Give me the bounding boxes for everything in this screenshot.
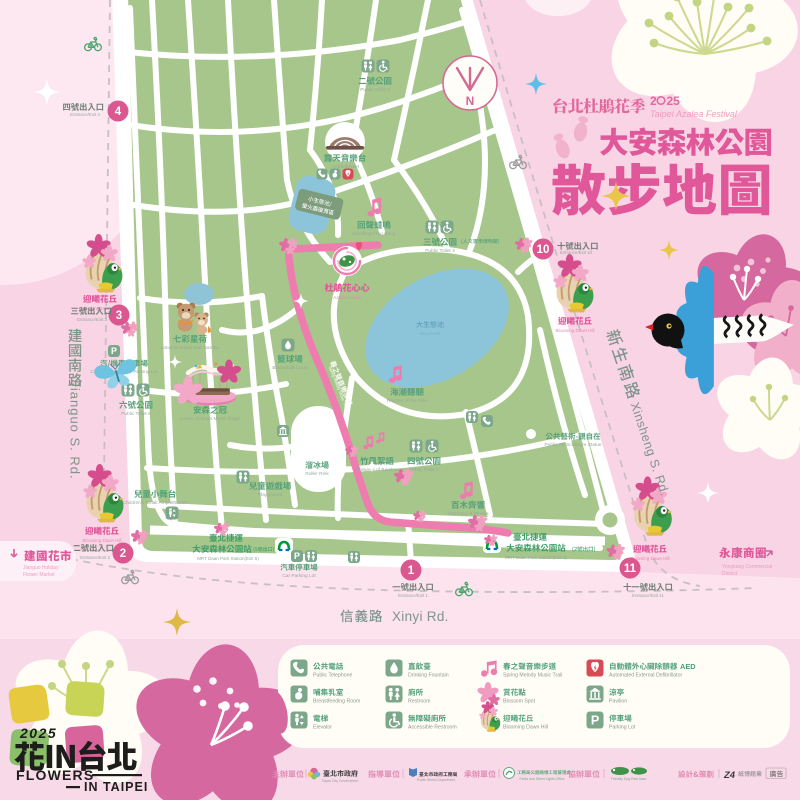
- svg-text:Whispers of Bamboo: Whispers of Bamboo: [355, 467, 400, 473]
- svg-text:P: P: [591, 714, 599, 728]
- svg-text:Public Toilet 3: Public Toilet 3: [425, 248, 455, 254]
- svg-text:Public Toilet 6: Public Toilet 6: [121, 411, 151, 417]
- svg-text:IN TAIPEI: IN TAIPEI: [84, 780, 148, 794]
- svg-text:Z4: Z4: [723, 770, 736, 781]
- svg-text:Friendly Dog Park Assn.: Friendly Dog Park Assn.: [611, 777, 647, 781]
- svg-text:Crown of Daan Music Stage: Crown of Daan Music Stage: [180, 416, 240, 422]
- svg-text:Breastfeeding Room: Breastfeeding Room: [313, 699, 360, 705]
- svg-text:Public Toilet 4: Public Toilet 4: [409, 467, 439, 473]
- svg-text:11: 11: [624, 563, 637, 575]
- svg-text:N: N: [466, 94, 475, 108]
- svg-text:AED: AED: [680, 662, 696, 671]
- svg-text:Harmony of Woods: Harmony of Woods: [448, 511, 490, 517]
- svg-text:Entrance/Exit 3: Entrance/Exit 3: [77, 317, 107, 322]
- svg-text:10: 10: [537, 244, 550, 256]
- svg-text:2: 2: [650, 94, 657, 108]
- svg-text:Parking Lot: Parking Lot: [609, 725, 636, 731]
- svg-text:Blooming Dawn Hill: Blooming Dawn Hill: [503, 725, 548, 731]
- svg-text:P: P: [294, 551, 300, 561]
- svg-text:2025: 2025: [19, 725, 57, 741]
- svg-text:Blooming Dawn Hill: Blooming Dawn Hill: [82, 538, 121, 543]
- svg-text:Public Art Sculpture Statue: Public Art Sculpture Statue: [544, 442, 601, 448]
- svg-text:Public Toilet 2: Public Toilet 2: [360, 87, 390, 93]
- svg-text:Drinking Fountain: Drinking Fountain: [408, 673, 449, 679]
- svg-text:Yongkang Commercial: Yongkang Commercial: [722, 564, 772, 570]
- svg-text:Blooming Dawn Hill: Blooming Dawn Hill: [555, 328, 594, 333]
- svg-text:Entrance/Exit 4: Entrance/Exit 4: [70, 112, 100, 117]
- svg-text:MRT Daan Park Station(Exit 5): MRT Daan Park Station(Exit 5): [197, 556, 259, 561]
- svg-text:Basketball Court: Basketball Court: [272, 365, 308, 371]
- svg-text:1: 1: [408, 565, 415, 577]
- svg-text:MRT Daan Park Station(Exit 2): MRT Daan Park Station(Exit 2): [505, 555, 567, 560]
- svg-text:Taipei City Government: Taipei City Government: [322, 779, 358, 783]
- svg-text:Entrance/Exit 10: Entrance/Exit 10: [560, 250, 593, 255]
- svg-text:Parks and Street Lights Office: Parks and Street Lights Office: [520, 777, 565, 781]
- svg-text:4: 4: [115, 106, 122, 118]
- svg-text:Flower Market: Flower Market: [23, 572, 55, 578]
- svg-text:Xinyi Rd.: Xinyi Rd.: [392, 609, 449, 624]
- svg-text:Car Parking Lot: Car Parking Lot: [282, 573, 316, 579]
- svg-text:Spring Melody Music Trail: Spring Melody Music Trail: [503, 673, 562, 679]
- svg-text:Elevator: Elevator: [313, 725, 332, 731]
- svg-text:Rhythm of the Tide: Rhythm of the Tide: [387, 398, 428, 404]
- svg-text:Entrance/Exit 2: Entrance/Exit 2: [80, 555, 110, 560]
- svg-text:P: P: [111, 346, 117, 356]
- svg-text:Jianguo Holiday: Jianguo Holiday: [23, 565, 59, 571]
- svg-text:2: 2: [120, 548, 126, 560]
- svg-text:Accessible Restroom: Accessible Restroom: [408, 725, 457, 731]
- svg-text:Public Works Department: Public Works Department: [417, 778, 455, 782]
- svg-text:District: District: [722, 571, 738, 577]
- svg-text:3: 3: [116, 310, 122, 322]
- svg-text:Eco Pond: Eco Pond: [420, 331, 440, 336]
- svg-text:Lotus-Scented Star Garden: Lotus-Scented Star Garden: [161, 345, 220, 351]
- svg-text:25: 25: [667, 94, 681, 108]
- svg-text:Children's Small Amphitheater: Children's Small Amphitheater: [123, 500, 188, 506]
- svg-text:Pavilion: Pavilion: [609, 699, 627, 705]
- svg-text:Entrance/Exit 11: Entrance/Exit 11: [632, 593, 664, 598]
- svg-text:FLOWERS: FLOWERS: [16, 767, 94, 783]
- svg-text:Blossom Spot: Blossom Spot: [503, 699, 536, 705]
- svg-text:Public Telephone: Public Telephone: [313, 673, 353, 679]
- svg-text:Entrance/Exit 1: Entrance/Exit 1: [398, 593, 428, 598]
- svg-text:Playground: Playground: [258, 492, 283, 498]
- svg-text:Restroom: Restroom: [408, 699, 431, 705]
- svg-text:Automated External Defibrillat: Automated External Defibrillator: [609, 673, 683, 679]
- svg-text:Taipei Azalea Festival: Taipei Azalea Festival: [650, 109, 738, 119]
- svg-text:Roller Rink: Roller Rink: [305, 471, 329, 477]
- svg-text:Croaking Frog Song: Croaking Frog Song: [353, 231, 396, 237]
- svg-text:Azalea Heart: Azalea Heart: [333, 295, 361, 301]
- svg-text:Jianguo S. Rd.: Jianguo S. Rd.: [68, 380, 83, 479]
